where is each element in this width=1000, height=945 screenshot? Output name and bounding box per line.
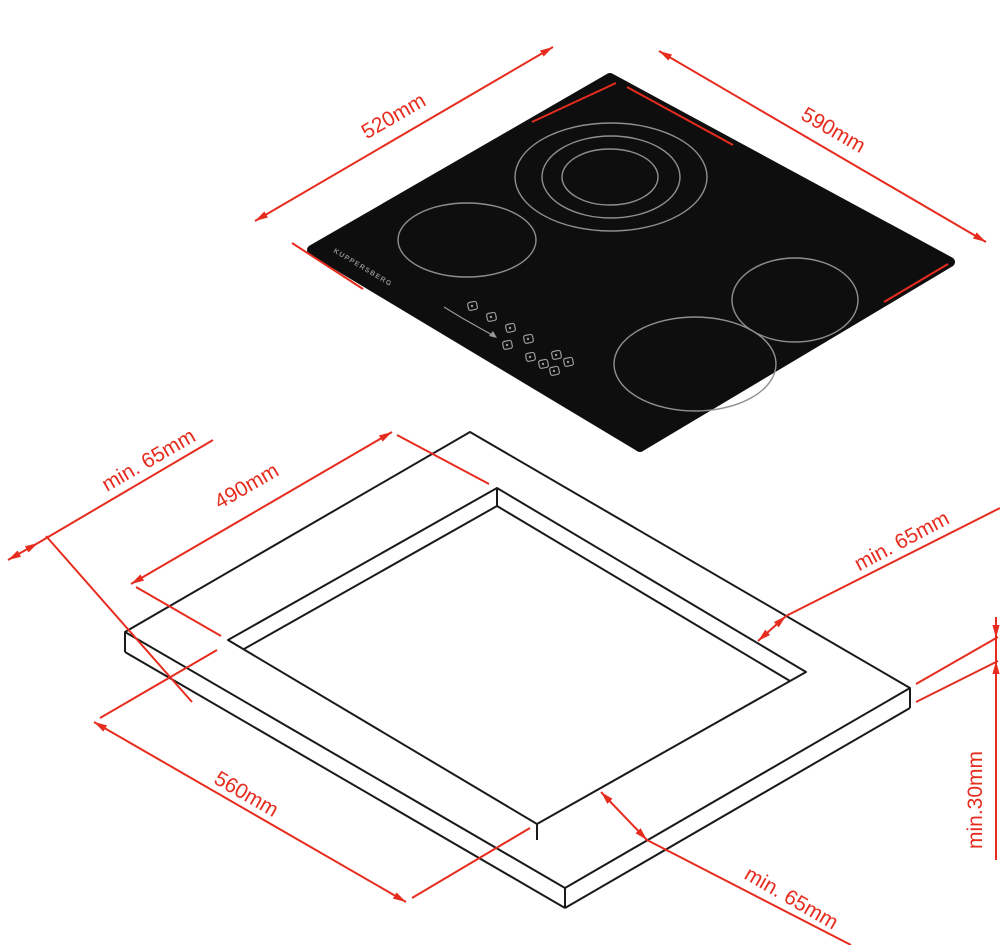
dimension-label-min65-front: min. 65mm: [741, 862, 842, 934]
hob-top-view: KUPPERSBERG: [255, 47, 986, 447]
dimension-clearance-rear: min. 65mm: [8, 424, 213, 702]
dimension-cutout-depth: 490mm: [131, 432, 489, 636]
installation-diagram: KUPPERSBERG: [0, 0, 1000, 945]
dimension-label-min65-rear: min. 65mm: [98, 424, 199, 496]
dimension-label-520mm: 520mm: [358, 89, 430, 144]
dimension-label-490mm: 490mm: [211, 459, 283, 514]
dimension-label-590mm: 590mm: [797, 103, 869, 158]
dimension-label-min30mm: min.30mm: [964, 751, 987, 849]
dimension-cutout-width: 560mm: [94, 650, 530, 902]
dimension-worktop-thickness: min.30mm: [916, 617, 998, 860]
worktop-slab: [125, 432, 910, 908]
worktop-cutout-view: 490mm min. 65mm min. 65mm 560mm min. 65m…: [8, 424, 1000, 945]
technical-drawing-sheet: KUPPERSBERG: [0, 0, 1000, 945]
cutout-opening: [228, 488, 806, 840]
dimension-label-min65-right: min. 65mm: [851, 507, 954, 576]
